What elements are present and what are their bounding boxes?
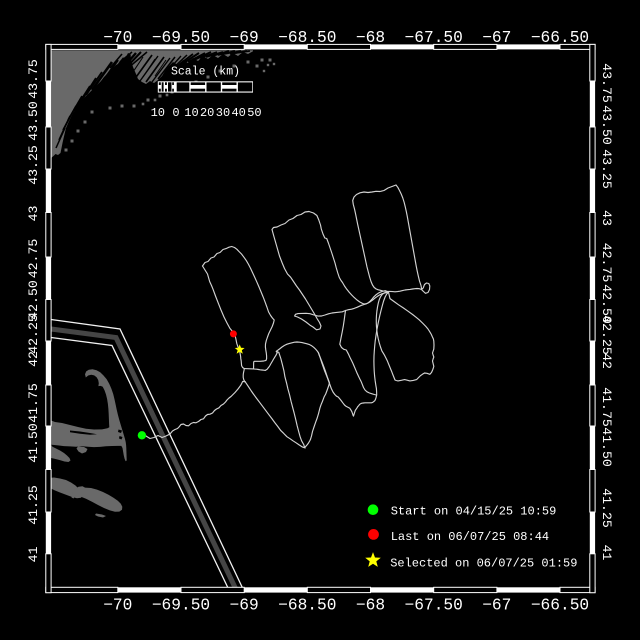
svg-text:−70: −70 (103, 597, 132, 615)
svg-text:43.50: 43.50 (26, 101, 41, 141)
svg-text:−69.50: −69.50 (152, 29, 210, 47)
svg-text:41: 41 (599, 545, 614, 561)
svg-text:10: 10 (184, 106, 198, 120)
svg-text:43.25: 43.25 (26, 145, 41, 185)
svg-text:−69.50: −69.50 (152, 597, 210, 615)
svg-text:−67: −67 (482, 29, 511, 47)
svg-text:41.25: 41.25 (26, 485, 41, 525)
svg-text:−68.50: −68.50 (278, 597, 336, 615)
svg-text:41.75: 41.75 (26, 383, 41, 423)
svg-text:−70: −70 (103, 29, 132, 47)
svg-text:20: 20 (200, 106, 214, 120)
svg-text:42.75: 42.75 (599, 243, 614, 283)
svg-text:41: 41 (26, 546, 41, 562)
svg-text:0: 0 (172, 106, 179, 120)
svg-text:Last on 06/07/25 08:44: Last on 06/07/25 08:44 (391, 530, 549, 544)
svg-text:−68.50: −68.50 (278, 29, 336, 47)
svg-text:−68: −68 (356, 29, 385, 47)
svg-text:50: 50 (247, 106, 261, 120)
svg-text:43.25: 43.25 (599, 149, 614, 189)
svg-text:43: 43 (599, 210, 614, 226)
svg-text:41.50: 41.50 (599, 427, 614, 467)
svg-text:42.50: 42.50 (26, 280, 41, 320)
svg-text:43.75: 43.75 (26, 59, 41, 99)
svg-text:40: 40 (231, 106, 245, 120)
svg-text:42.25: 42.25 (599, 315, 614, 355)
svg-text:42: 42 (26, 351, 41, 367)
svg-text:41.75: 41.75 (599, 387, 614, 427)
svg-text:Selected on 06/07/25 01:59: Selected on 06/07/25 01:59 (390, 556, 577, 570)
svg-text:42.75: 42.75 (26, 239, 41, 279)
svg-text:43.50: 43.50 (599, 105, 614, 145)
svg-text:−67.50: −67.50 (405, 597, 463, 615)
svg-text:42.25: 42.25 (26, 314, 41, 354)
svg-text:−67: −67 (482, 597, 511, 615)
svg-text:43.75: 43.75 (599, 63, 614, 103)
svg-text:10: 10 (151, 106, 165, 120)
svg-text:−69: −69 (230, 597, 259, 615)
svg-text:−66.50: −66.50 (531, 29, 589, 47)
svg-text:41.25: 41.25 (599, 488, 614, 528)
svg-text:−69: −69 (230, 29, 259, 47)
svg-text:43: 43 (26, 206, 41, 222)
svg-text:41.50: 41.50 (26, 423, 41, 463)
svg-text:30: 30 (216, 106, 230, 120)
svg-text:−67.50: −67.50 (405, 29, 463, 47)
svg-text:42: 42 (599, 353, 614, 369)
svg-text:−66.50: −66.50 (531, 597, 589, 615)
svg-text:Scale (km): Scale (km) (171, 66, 240, 79)
svg-text:−68: −68 (356, 597, 385, 615)
svg-text:Start on 04/15/25 10:59: Start on 04/15/25 10:59 (391, 505, 557, 519)
